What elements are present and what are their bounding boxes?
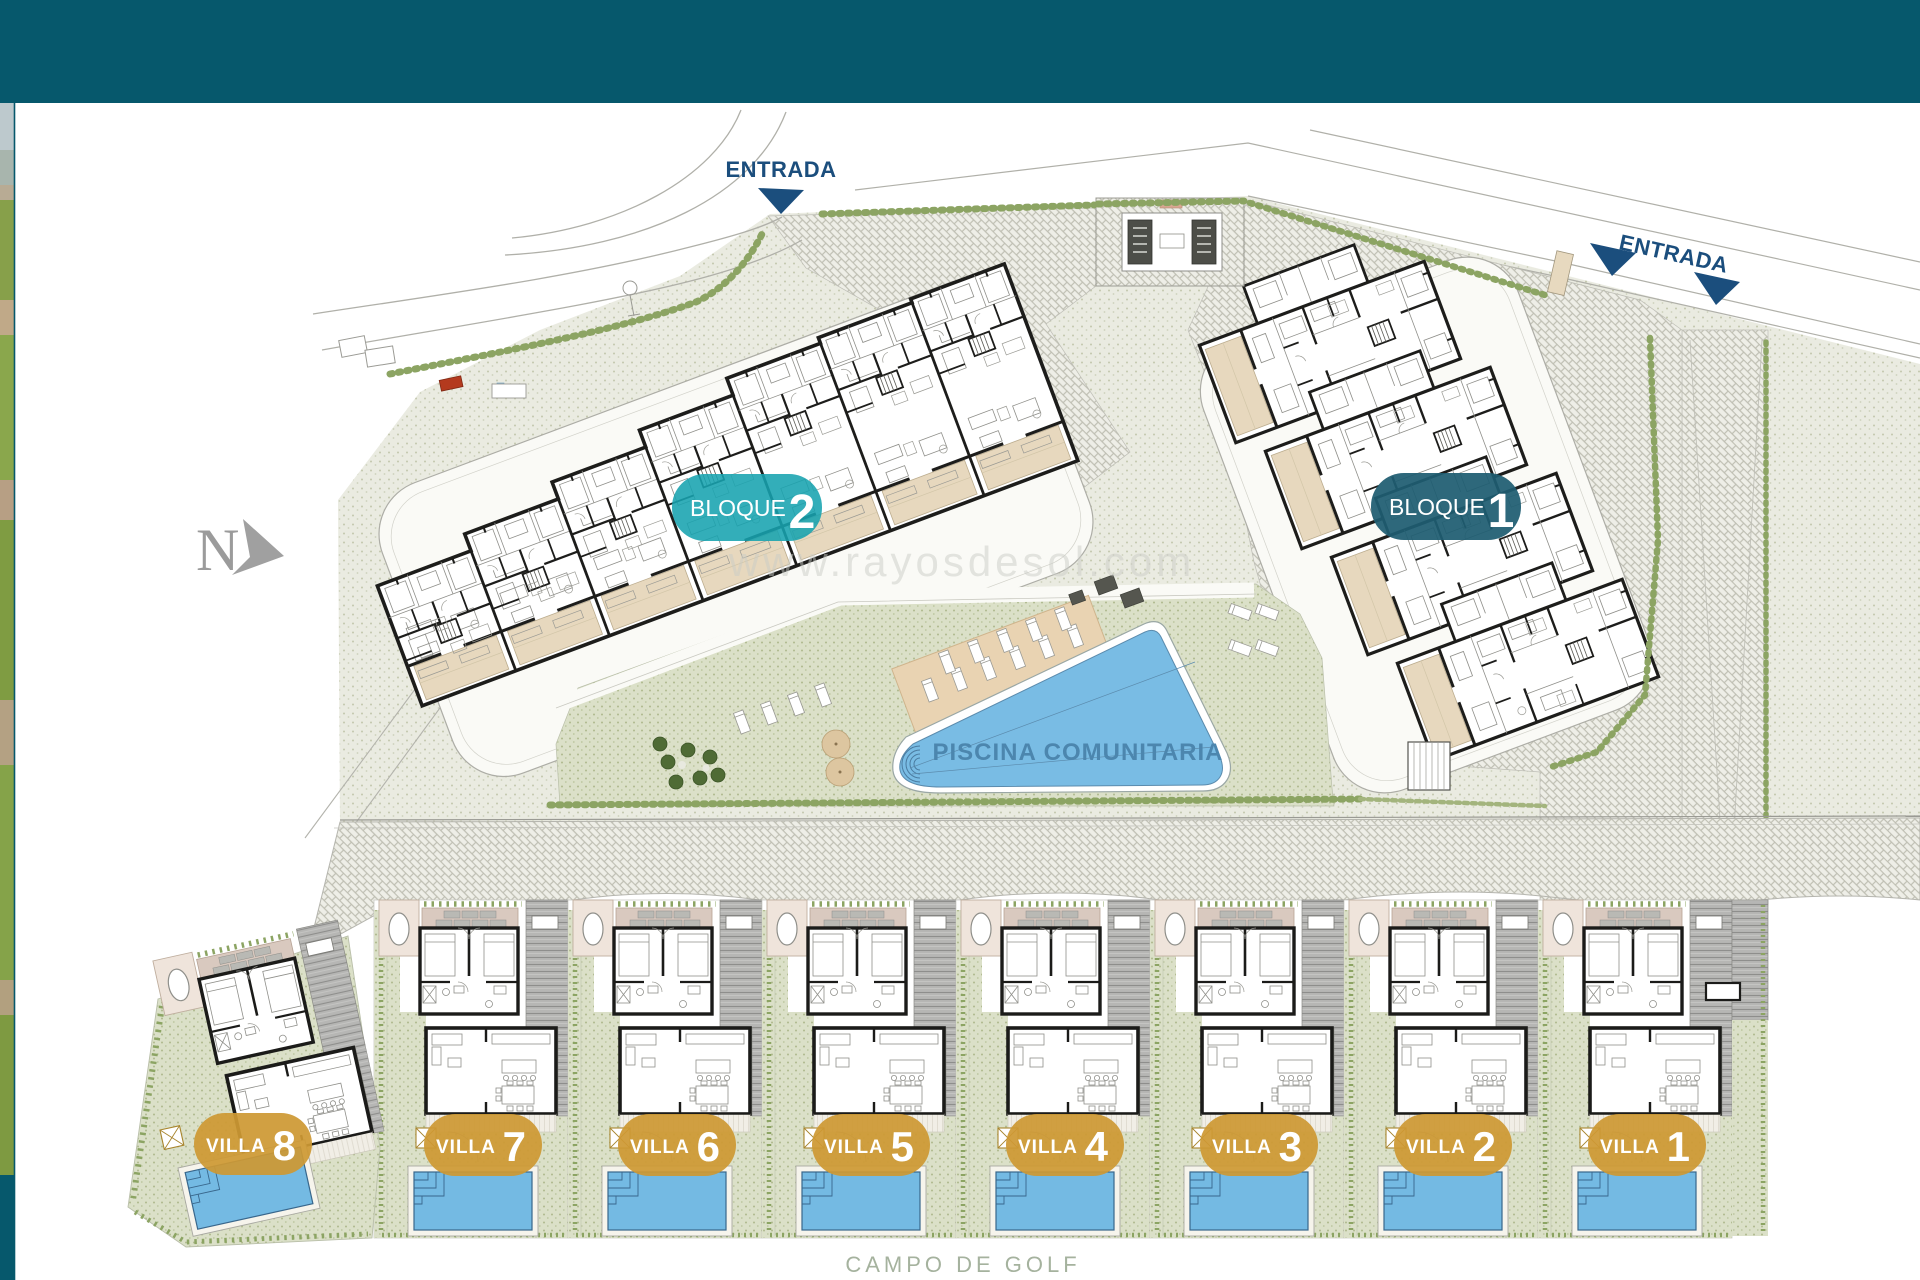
svg-text:ENTRADA: ENTRADA xyxy=(725,157,836,182)
svg-text:VILLA: VILLA xyxy=(1018,1137,1078,1158)
svg-text:2: 2 xyxy=(1473,1123,1496,1170)
svg-text:CAMPO DE GOLF: CAMPO DE GOLF xyxy=(845,1252,1080,1277)
svg-text:VILLA: VILLA xyxy=(206,1136,266,1157)
svg-text:1: 1 xyxy=(1488,485,1515,538)
svg-text:3: 3 xyxy=(1279,1123,1302,1170)
svg-text:VILLA: VILLA xyxy=(1212,1137,1272,1158)
svg-text:BLOQUE: BLOQUE xyxy=(1389,494,1485,520)
svg-text:www.rayosdesol.com: www.rayosdesol.com xyxy=(728,538,1195,585)
svg-text:PISCINA COMUNITARIA: PISCINA COMUNITARIA xyxy=(933,739,1224,766)
svg-text:1: 1 xyxy=(1667,1123,1690,1170)
svg-text:BLOQUE: BLOQUE xyxy=(690,495,786,521)
svg-text:5: 5 xyxy=(891,1123,914,1170)
svg-text:VILLA: VILLA xyxy=(436,1137,496,1158)
svg-text:4: 4 xyxy=(1085,1123,1109,1170)
svg-text:VILLA: VILLA xyxy=(824,1137,884,1158)
svg-text:N: N xyxy=(196,517,239,583)
svg-text:VILLA: VILLA xyxy=(630,1137,690,1158)
svg-text:8: 8 xyxy=(273,1122,296,1169)
svg-text:2: 2 xyxy=(789,486,816,539)
svg-text:VILLA: VILLA xyxy=(1406,1137,1466,1158)
svg-text:7: 7 xyxy=(503,1123,526,1170)
svg-text:6: 6 xyxy=(697,1123,720,1170)
svg-text:VILLA: VILLA xyxy=(1600,1137,1660,1158)
